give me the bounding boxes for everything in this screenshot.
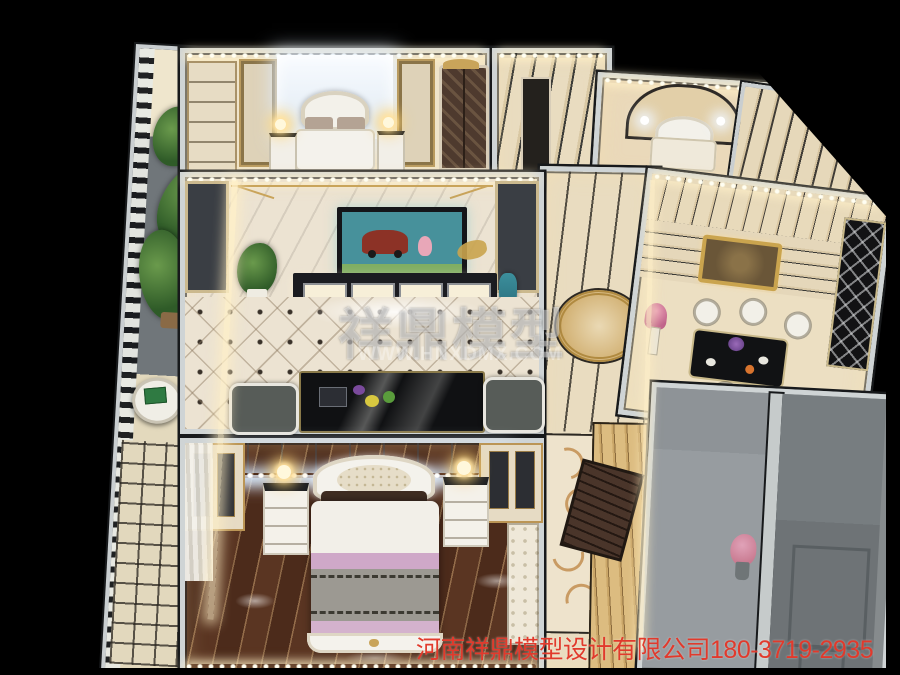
dining-chair [692,298,721,327]
tv-cartoon-wheel [368,250,376,258]
bed-body [295,129,375,171]
door-arch-gold [443,59,479,69]
wardrobe-mirror-panel [489,451,509,509]
floor-sheen [475,573,519,589]
table-lamp [383,117,394,128]
wardrobe-shelf [187,61,237,173]
bedroom-door [439,65,489,171]
bed-body [311,501,439,639]
nightstand [269,133,297,175]
phone-number-text: 180-3719-2935 [710,636,873,664]
black-strip-bottom [0,668,900,675]
nightstand [443,477,489,547]
footboard-gold-heart [369,639,379,647]
gold-trim-line [231,185,493,187]
model-photo-scene: 祥鼎模型 WWW.HNXDMX.COM 河南祥鼎模型设计有限公司180-3719… [0,0,900,675]
room-bedroom-top [180,48,492,180]
bed-stripe-lavender [311,553,439,569]
tv-wall-side-panel [185,181,229,293]
tv-cartoon-pig [418,236,432,256]
black-strip-right [886,0,900,675]
nightstand [377,131,405,173]
bouquet-vase [735,562,750,581]
ceiling-led-strip [187,177,535,182]
crystal-lamp [457,461,471,475]
nightstand [263,483,309,555]
blanket-scallop-line [311,611,439,614]
floor-sheen [235,593,275,609]
ceiling-led-strip [499,53,603,58]
curtain [185,443,213,581]
dining-chair [739,297,768,326]
blanket-scallop-line [311,575,439,578]
company-name-text: 河南祥鼎模型设计有限公司 [416,636,710,664]
floor-sheen [345,651,405,665]
tv [337,207,467,281]
wardrobe-mirror-panel [515,451,535,509]
crystal-lamp [277,465,291,479]
table-item-yellow [365,395,379,407]
armchair [483,377,545,433]
bed-body [649,136,717,172]
coffee-table [299,371,485,433]
table-item-green [383,391,395,403]
armchair [229,383,299,435]
dark-doorway [523,79,549,175]
table-item-screen [319,387,347,407]
tv-cartoon-wheel [394,250,402,258]
watermark-url-text: WWW.HNXDMX.COM [358,344,562,366]
table-item-purple [353,385,365,395]
table-lamp [275,119,286,130]
gold-wall-mirror [697,234,782,291]
dining-chair [783,311,812,340]
green-book [144,387,167,405]
company-contact-text: 河南祥鼎模型设计有限公司180-3719-2935 [416,630,873,666]
